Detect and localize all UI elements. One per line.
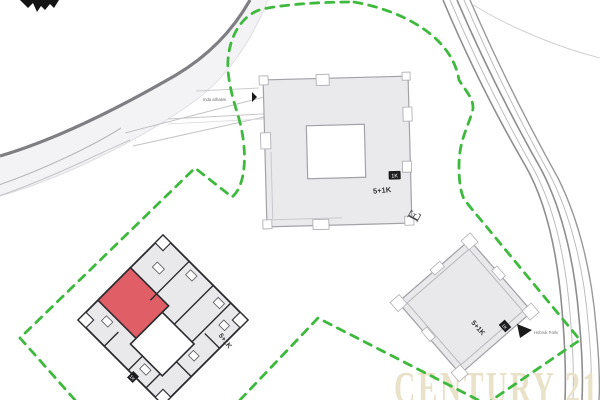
- building-top-unit-chip: 1K: [389, 171, 401, 180]
- watermark: CENTURY 21: [394, 364, 600, 400]
- building-top-type-label: 5+1K: [373, 185, 392, 196]
- road-note-label: Hobruk Parkı: [534, 330, 558, 335]
- building-right-footprint[interactable]: [398, 240, 532, 374]
- building-top[interactable]: 5+1K 1K: [259, 72, 415, 231]
- svg-text:1K: 1K: [391, 173, 398, 179]
- building-top-courtyard: [306, 124, 365, 179]
- driveway-note-label: mda arhatvn: [203, 97, 227, 102]
- road-note-arrow-icon: [517, 324, 532, 338]
- site-plan-canvas: CENTURY 21 5+1K 1K E: [0, 0, 600, 400]
- driveway-note-arrow-icon: [252, 92, 257, 102]
- building-right[interactable]: [390, 233, 539, 382]
- road-note: Hobruk Parkı: [517, 324, 558, 338]
- building-left[interactable]: [78, 235, 248, 400]
- north-arrow-icon: [20, 0, 59, 12]
- road-fork-line: [472, 4, 600, 58]
- road-main: [0, 0, 268, 197]
